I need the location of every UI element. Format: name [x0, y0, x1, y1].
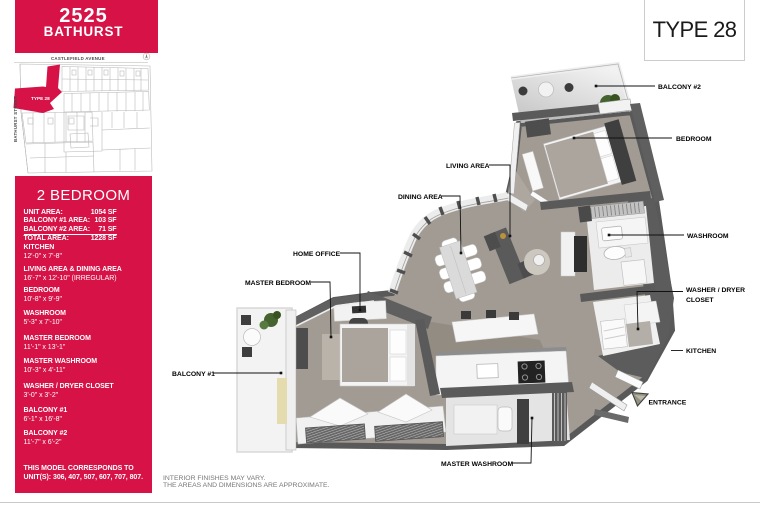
svg-text:BATHURST STREET: BATHURST STREET — [13, 96, 18, 142]
svg-text:CASTLEFIELD AVENUE: CASTLEFIELD AVENUE — [51, 56, 105, 61]
svg-text:MASTER BEDROOM: MASTER BEDROOM — [245, 280, 311, 287]
svg-text:BEDROOM: BEDROOM — [676, 136, 712, 143]
svg-text:WASHER / DRYER: WASHER / DRYER — [686, 287, 745, 294]
svg-text:BALCONY #1: BALCONY #1 — [172, 371, 215, 378]
svg-text:HOME OFFICE: HOME OFFICE — [293, 251, 341, 258]
svg-text:BALCONY #2: BALCONY #2 — [658, 84, 701, 91]
svg-text:CLOSET: CLOSET — [686, 297, 714, 304]
svg-text:MASTER WASHROOM: MASTER WASHROOM — [441, 461, 513, 468]
svg-text:LIVING AREA: LIVING AREA — [446, 163, 490, 170]
svg-text:WASHROOM: WASHROOM — [687, 233, 729, 240]
svg-text:KITCHEN: KITCHEN — [686, 348, 716, 355]
svg-text:TYPE 28: TYPE 28 — [31, 96, 50, 101]
svg-text:ENTRANCE: ENTRANCE — [649, 400, 687, 407]
svg-text:DINING AREA: DINING AREA — [398, 194, 443, 201]
